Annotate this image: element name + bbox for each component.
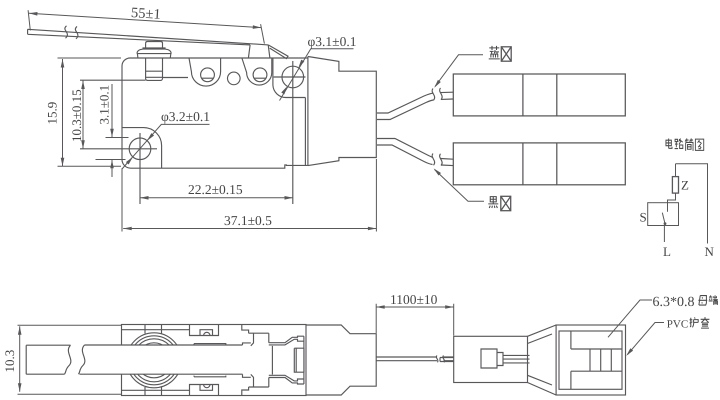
svg-text:1100±10: 1100±10: [390, 292, 438, 307]
svg-text:55±1: 55±1: [131, 5, 162, 23]
svg-text:3.1±0.1: 3.1±0.1: [97, 85, 112, 125]
svg-text:10.3: 10.3: [2, 350, 17, 373]
svg-text:PVC: PVC: [667, 318, 688, 330]
svg-text:N: N: [705, 244, 715, 259]
svg-text:L: L: [663, 244, 671, 259]
svg-text:15.9: 15.9: [45, 102, 60, 125]
svg-text:S: S: [640, 210, 647, 225]
svg-text:6.3*0.8: 6.3*0.8: [653, 295, 695, 310]
svg-text:φ3.1±0.1: φ3.1±0.1: [308, 34, 357, 49]
svg-text:37.1±0.5: 37.1±0.5: [224, 213, 272, 228]
svg-text:φ3.2±0.1: φ3.2±0.1: [161, 109, 210, 124]
svg-text:22.2±0.15: 22.2±0.15: [188, 182, 243, 197]
svg-text:10.3±0.15: 10.3±0.15: [69, 89, 84, 142]
svg-text:Z: Z: [681, 178, 689, 193]
